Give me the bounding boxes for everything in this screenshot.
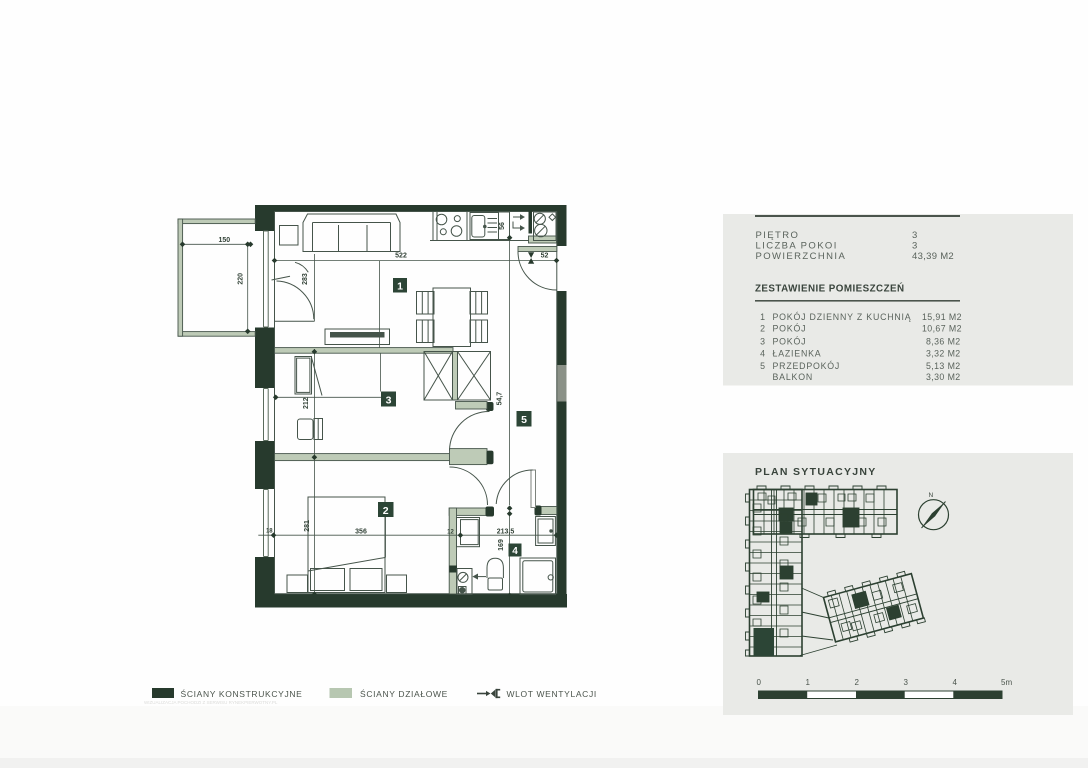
svg-text:4: 4: [953, 678, 958, 687]
svg-text:PLAN SYTUACYJNY: PLAN SYTUACYJNY: [755, 466, 877, 478]
svg-text:150: 150: [219, 237, 231, 244]
svg-text:ZESTAWIENIE POMIESZCZEŃ: ZESTAWIENIE POMIESZCZEŃ: [755, 283, 905, 295]
svg-text:10,67 M2: 10,67 M2: [922, 324, 962, 334]
svg-text:PIĘTRO: PIĘTRO: [756, 230, 800, 241]
svg-text:2: 2: [760, 324, 766, 334]
svg-text:18: 18: [266, 528, 273, 534]
svg-text:356: 356: [355, 528, 367, 535]
svg-text:3: 3: [386, 394, 392, 406]
svg-text:3: 3: [904, 678, 909, 687]
svg-text:POKÓJ: POKÓJ: [773, 324, 807, 334]
svg-text:ŚCIANY KONSTRUKCYJNE: ŚCIANY KONSTRUKCYJNE: [181, 688, 303, 699]
svg-text:43,39 M2: 43,39 M2: [912, 251, 954, 262]
svg-text:283: 283: [302, 273, 309, 285]
svg-text:ŚCIANY DZIAŁOWE: ŚCIANY DZIAŁOWE: [360, 688, 448, 699]
svg-text:5: 5: [760, 361, 766, 371]
svg-text:1: 1: [760, 312, 766, 322]
svg-text:ŁAZIENKA: ŁAZIENKA: [773, 349, 822, 359]
svg-text:5,13 M2: 5,13 M2: [926, 361, 961, 371]
svg-text:1: 1: [806, 678, 811, 687]
svg-text:WLOT WENTYLACJI: WLOT WENTYLACJI: [507, 689, 597, 699]
svg-text:0: 0: [757, 678, 762, 687]
svg-text:3,30 M2: 3,30 M2: [926, 372, 961, 382]
svg-text:4: 4: [760, 349, 766, 359]
svg-text:POKÓJ DZIENNY Z KUCHNIĄ: POKÓJ DZIENNY Z KUCHNIĄ: [773, 312, 912, 322]
svg-text:2: 2: [383, 505, 389, 517]
svg-text:8,36 M2: 8,36 M2: [926, 337, 961, 347]
svg-text:3: 3: [912, 241, 918, 252]
svg-text:POWIERZCHNIA: POWIERZCHNIA: [756, 251, 847, 262]
svg-text:5m: 5m: [1001, 678, 1012, 687]
svg-text:2: 2: [855, 678, 860, 687]
svg-text:56: 56: [499, 222, 506, 230]
svg-text:169: 169: [498, 539, 505, 551]
svg-text:212: 212: [303, 397, 310, 409]
svg-text:281: 281: [304, 520, 311, 532]
svg-text:POKÓJ: POKÓJ: [773, 337, 807, 347]
svg-text:WIZUALIZACJA POCHODZI Z SERWIS: WIZUALIZACJA POCHODZI Z SERWISU RYNEKPIE…: [144, 700, 278, 705]
svg-text:BALKON: BALKON: [773, 372, 814, 382]
svg-text:220: 220: [238, 273, 245, 285]
svg-text:3: 3: [912, 230, 918, 241]
svg-text:52: 52: [541, 253, 549, 260]
svg-text:3: 3: [760, 337, 766, 347]
svg-text:LICZBA POKOI: LICZBA POKOI: [756, 241, 838, 252]
svg-text:1: 1: [397, 281, 403, 293]
svg-text:4: 4: [512, 546, 518, 557]
svg-text:PRZEDPOKÓJ: PRZEDPOKÓJ: [773, 361, 841, 371]
svg-text:N: N: [929, 492, 934, 499]
svg-text:54,7: 54,7: [497, 392, 504, 406]
svg-text:5: 5: [521, 414, 527, 426]
svg-text:522: 522: [395, 253, 407, 260]
svg-text:213,5: 213,5: [497, 528, 515, 535]
svg-text:15,91 M2: 15,91 M2: [922, 312, 962, 322]
svg-text:3,32 M2: 3,32 M2: [926, 349, 961, 359]
svg-text:12: 12: [447, 529, 454, 535]
